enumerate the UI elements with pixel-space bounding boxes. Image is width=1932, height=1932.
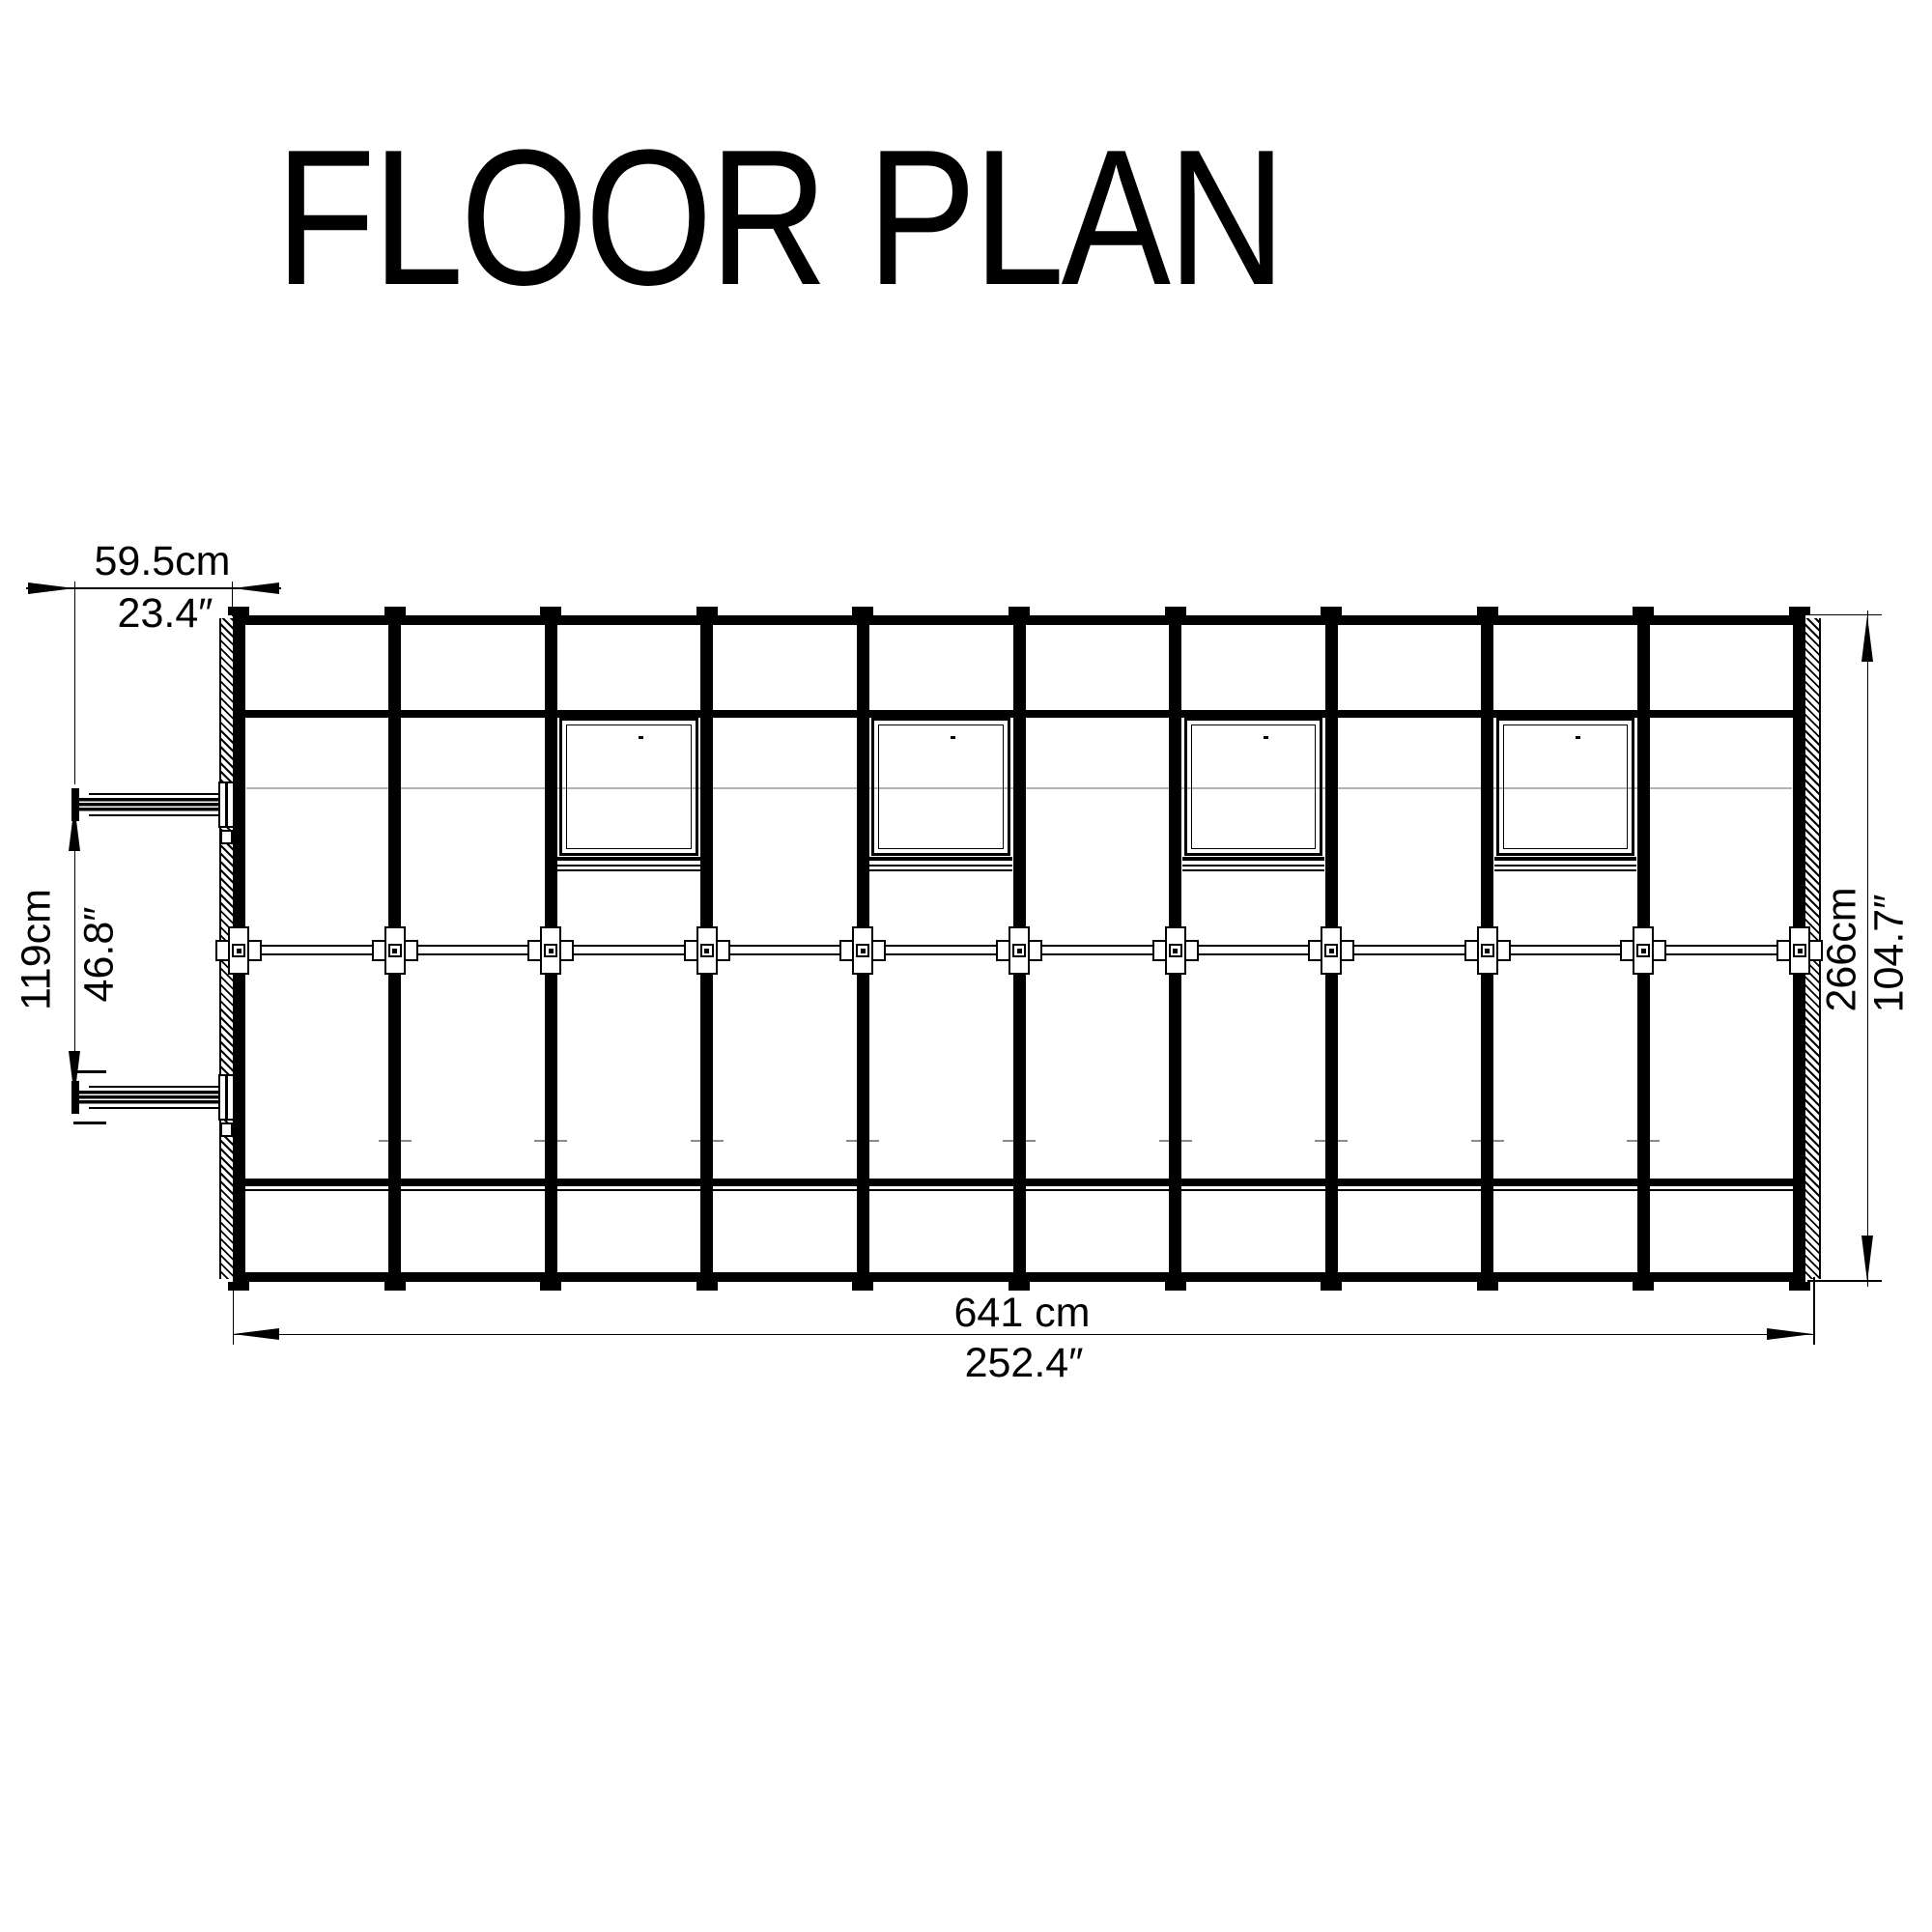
rib-cap [696, 1282, 718, 1291]
rib-joint-tick [713, 1140, 724, 1142]
opener-arm-bottom-bar [79, 1091, 226, 1104]
rib-cap [1321, 1282, 1342, 1291]
rib-cap [1633, 607, 1654, 615]
window-sill [1494, 869, 1637, 871]
rib-cap [696, 607, 718, 615]
dim-width-arrow-right [1767, 1328, 1813, 1340]
dim-depth-inch-label: 104.7″ [1869, 895, 1911, 1013]
rib-joint-tick [1649, 1140, 1660, 1142]
dim-width-arrow-left [233, 1328, 279, 1340]
rib-cap [1165, 1282, 1186, 1291]
cross-connector-pin [1329, 949, 1334, 953]
dim-armlen-arrow-right [233, 582, 279, 594]
rib-joint-tick [1471, 1140, 1482, 1142]
dim-depth-cm-label: 266cm [1822, 887, 1863, 1011]
window-sill [869, 865, 1012, 867]
cross-connector-pin [1798, 949, 1803, 953]
roof-window [559, 718, 698, 856]
roof-window-inner-frame [1191, 724, 1317, 849]
cross-connector-pin [861, 949, 866, 953]
rib-cap [1165, 607, 1186, 615]
window-sill [557, 869, 700, 871]
roof-window [1184, 718, 1323, 856]
window-sill [1494, 865, 1637, 867]
rib-joint-tick [534, 1140, 545, 1142]
vent-handle-mark [1264, 736, 1268, 739]
opener-arm-top-wall-foot [220, 830, 233, 844]
rib-cap [1009, 607, 1030, 615]
rib-joint-tick [691, 1140, 701, 1142]
rib-cap [1789, 1282, 1810, 1291]
dim-armspacing-arrow-bottom [69, 1051, 80, 1097]
vent-handle-mark [639, 736, 643, 739]
window-sill [1182, 865, 1325, 867]
rib-cap [540, 1282, 561, 1291]
floor-plan-page: FLOOR PLAN 59.5cm 23.4″ 119cm 46.8″ 266c… [0, 0, 1932, 1932]
opener-arm-bottom-upper-rod [89, 1086, 218, 1088]
window-sill [557, 857, 700, 861]
rib-joint-tick [379, 1140, 389, 1142]
dim-armlen-ext-wall [232, 582, 234, 616]
cross-connector-pin [704, 949, 709, 953]
rib-cap [384, 607, 406, 615]
rib-joint-tick [1003, 1140, 1013, 1142]
roof-window-inner-frame [1503, 724, 1629, 849]
window-sill [869, 857, 1012, 861]
opener-arm-top-lower-rod [89, 814, 218, 816]
rib-joint-tick [401, 1140, 412, 1142]
dim-depth-arrow-top [1861, 615, 1873, 662]
dim-armlen-arrow-left [28, 582, 74, 594]
opener-arm-bottom-wall-foot [220, 1122, 233, 1137]
rib-cap [852, 1282, 873, 1291]
vent-handle-mark [951, 736, 955, 739]
rib-joint-tick [1315, 1140, 1325, 1142]
rib-joint-tick [1181, 1140, 1192, 1142]
opener-arm-top-bracket-rib [225, 781, 228, 828]
dim-armspacing-arrow-top [69, 805, 80, 851]
dim-armspacing-inch-label: 46.8″ [79, 907, 121, 1003]
rib-joint-tick [1493, 1140, 1504, 1142]
rib-cap [1477, 607, 1498, 615]
rib-cap [228, 1282, 249, 1291]
roof-window [1496, 718, 1635, 856]
rib-joint-tick [1627, 1140, 1637, 1142]
window-sill [1494, 857, 1637, 861]
window-sill [869, 869, 1012, 871]
rib-joint-tick [1337, 1140, 1348, 1142]
rib-joint-tick [1025, 1140, 1036, 1142]
cross-connector-pin [237, 949, 241, 953]
dim-armlen-ext-outer [74, 582, 76, 784]
dim-armlen-inch-label: 23.4″ [118, 593, 213, 635]
rib-joint-tick [1159, 1140, 1170, 1142]
roof-window [871, 718, 1010, 856]
rib-joint-tick [868, 1140, 879, 1142]
dim-width-inch-label: 252.4″ [965, 1343, 1084, 1384]
opener-arm-bottom-bracket-rib [225, 1074, 228, 1121]
roof-window-inner-frame [566, 724, 692, 849]
window-sill [557, 865, 700, 867]
opener-arm-bottom-tip-hook-bottom [73, 1122, 106, 1124]
cross-connector-pin [392, 949, 397, 953]
rib-cap [384, 1282, 406, 1291]
rib-cap [1477, 1282, 1498, 1291]
dim-armspacing-cm-label: 119cm [16, 889, 58, 1010]
window-sill [1182, 869, 1325, 871]
window-sill [1182, 857, 1325, 861]
cross-connector-pin [1173, 949, 1178, 953]
opener-arm-top-upper-rod [89, 793, 218, 795]
cross-connector-pin [1017, 949, 1022, 953]
rib-joint-tick [846, 1140, 857, 1142]
rib-cap [1321, 607, 1342, 615]
rib-cap [852, 607, 873, 615]
rib-cap [1633, 1282, 1654, 1291]
dim-depth-arrow-bottom [1861, 1236, 1873, 1282]
opener-arm-bottom-lower-rod [89, 1107, 218, 1109]
opener-arm-top-bar [79, 798, 226, 811]
cross-connector-pin [1485, 949, 1490, 953]
page-title: FLOOR PLAN [275, 122, 1283, 315]
cross-connector-pin [549, 949, 554, 953]
roof-window-inner-frame [878, 724, 1004, 849]
cross-connector-pin [1641, 949, 1646, 953]
dim-width-cm-label: 641 cm [953, 1293, 1090, 1334]
rib-joint-tick [556, 1140, 567, 1142]
rib-cap [540, 607, 561, 615]
dim-armlen-cm-label: 59.5cm [94, 541, 230, 582]
vent-handle-mark [1576, 736, 1580, 739]
